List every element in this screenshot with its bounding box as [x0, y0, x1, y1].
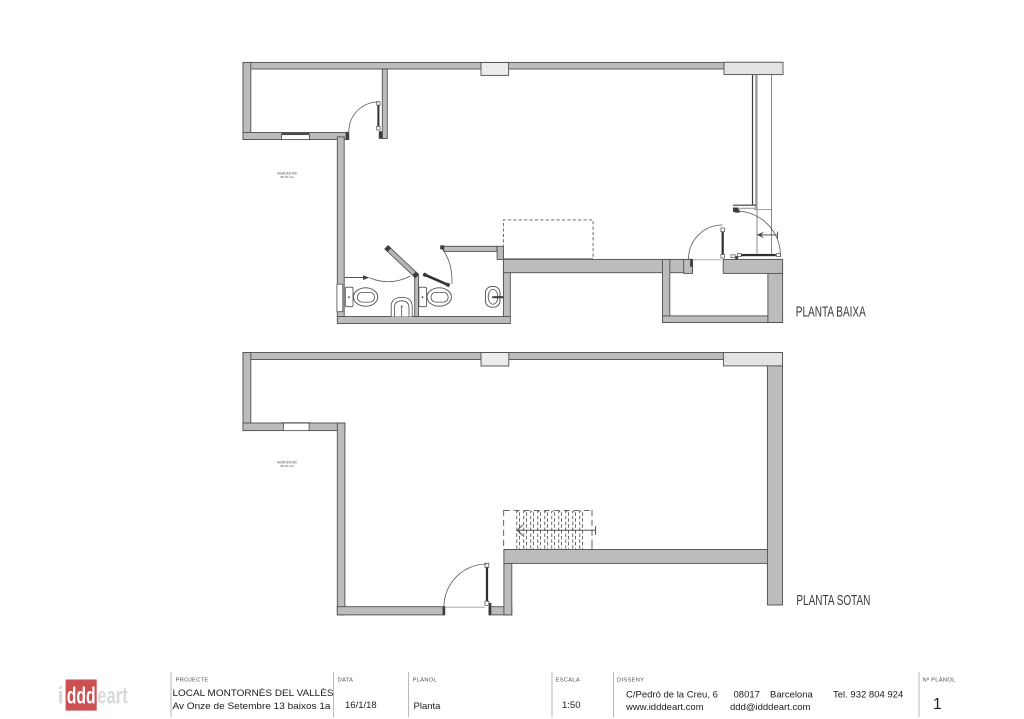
- svg-text:80,00 m2: 80,00 m2: [281, 175, 294, 179]
- svg-text:ESCALA: ESCALA: [556, 678, 580, 684]
- svg-text:1: 1: [933, 696, 942, 713]
- svg-text:08017: 08017: [734, 690, 760, 701]
- svg-text:Planta: Planta: [414, 701, 442, 712]
- svg-text:www.idddeart.com: www.idddeart.com: [625, 702, 704, 713]
- svg-text:PLÀNOL: PLÀNOL: [413, 677, 438, 684]
- svg-text:i: i: [58, 683, 64, 709]
- svg-text:16/1/18: 16/1/18: [345, 700, 377, 711]
- svg-text:Barcelona: Barcelona: [770, 690, 813, 701]
- svg-text:PLANTA BAIXA: PLANTA BAIXA: [796, 305, 866, 321]
- svg-text:C/Pedró de la Creu, 6: C/Pedró de la Creu, 6: [626, 690, 718, 701]
- svg-text:DISSENY: DISSENY: [617, 678, 644, 684]
- svg-text:1:50: 1:50: [562, 700, 581, 711]
- svg-text:ddd: ddd: [67, 683, 96, 709]
- svg-text:PLANTA SOTAN: PLANTA SOTAN: [796, 593, 870, 609]
- svg-text:Tel. 932 804 924: Tel. 932 804 924: [833, 690, 903, 701]
- svg-text:Av Onze de Setembre 13 baixos: Av Onze de Setembre 13 baixos 1a: [173, 701, 332, 712]
- svg-text:eart: eart: [97, 683, 128, 709]
- svg-text:LOCAL MONTORNÈS DEL VALLÈS: LOCAL MONTORNÈS DEL VALLÈS: [173, 688, 334, 699]
- svg-text:Nº PLÀNOL: Nº PLÀNOL: [923, 677, 957, 684]
- svg-text:80,00 m2: 80,00 m2: [281, 464, 294, 468]
- svg-text:PROJECTE: PROJECTE: [176, 678, 209, 684]
- svg-text:DATA: DATA: [338, 678, 354, 684]
- svg-text:ddd@idddeart.com: ddd@idddeart.com: [730, 702, 810, 713]
